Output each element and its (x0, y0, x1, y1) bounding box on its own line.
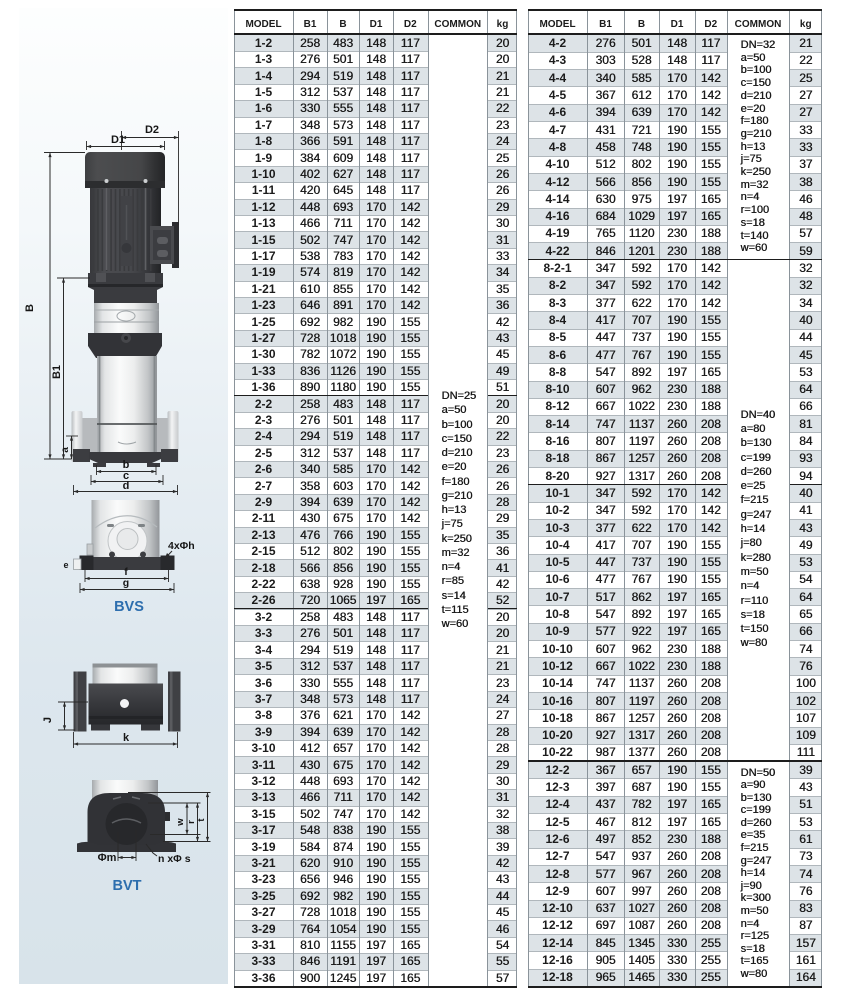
svg-text:BVS: BVS (114, 599, 144, 615)
svg-text:BVT: BVT (113, 878, 142, 894)
svg-text:e: e (63, 560, 68, 570)
svg-text:n xΦ s: n xΦ s (158, 853, 191, 865)
svg-text:k: k (123, 732, 130, 744)
svg-text:w: w (175, 818, 186, 827)
svg-text:B: B (24, 304, 36, 312)
svg-text:J: J (42, 717, 54, 723)
svg-text:a: a (60, 447, 71, 453)
svg-text:Φm: Φm (98, 852, 117, 864)
svg-text:D2: D2 (145, 124, 159, 136)
svg-text:d: d (123, 480, 130, 492)
svg-text:g: g (123, 577, 129, 589)
svg-text:4xΦh: 4xΦh (168, 540, 195, 552)
svg-text:D1: D1 (111, 134, 125, 146)
svg-text:B1: B1 (51, 365, 63, 379)
